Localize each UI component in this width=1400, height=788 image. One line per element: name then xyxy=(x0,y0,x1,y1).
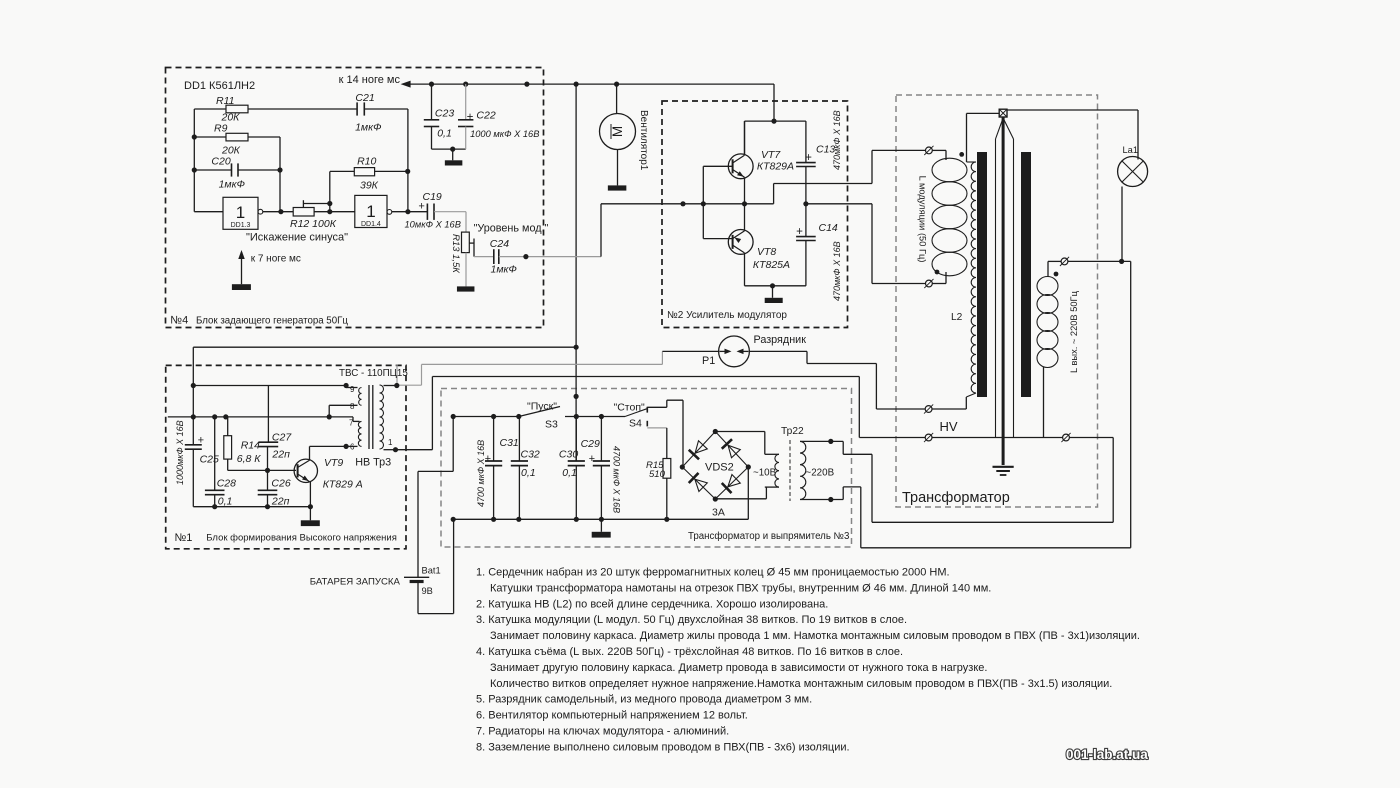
svg-text:HV: HV xyxy=(940,419,958,434)
svg-text:КТ829А: КТ829А xyxy=(757,161,794,173)
svg-text:7. Радиаторы на ключах модулят: 7. Радиаторы на ключах модулятора - алюм… xyxy=(476,726,729,738)
svg-text:0,1: 0,1 xyxy=(562,467,577,479)
svg-text:VDS2: VDS2 xyxy=(705,462,734,474)
svg-text:Bat1: Bat1 xyxy=(422,566,441,576)
svg-text:"Стоп": "Стоп" xyxy=(614,402,646,414)
svg-text:+: + xyxy=(589,453,596,465)
svg-text:39К: 39К xyxy=(360,180,379,192)
svg-text:4700 мкФ Х 16В: 4700 мкФ Х 16В xyxy=(612,446,622,513)
svg-text:DD1 К561ЛН2: DD1 К561ЛН2 xyxy=(184,80,255,92)
svg-text:22п: 22п xyxy=(271,496,290,508)
svg-text:L2: L2 xyxy=(951,312,963,323)
svg-text:"Уровень мод.": "Уровень мод." xyxy=(474,223,549,235)
svg-text:C22: C22 xyxy=(476,110,495,122)
svg-text:БАТАРЕЯ ЗАПУСКА: БАТАРЕЯ ЗАПУСКА xyxy=(310,577,401,588)
svg-text:9: 9 xyxy=(350,385,355,394)
svg-text:470мкФ Х 16В: 470мкФ Х 16В xyxy=(832,110,842,170)
svg-text:Разрядник: Разрядник xyxy=(754,334,807,346)
svg-text:7: 7 xyxy=(349,419,354,428)
svg-text:1мкФ: 1мкФ xyxy=(219,179,245,191)
svg-text:8: 8 xyxy=(350,402,355,411)
svg-text:Трансформатор: Трансформатор xyxy=(902,490,1010,506)
svg-text:R10: R10 xyxy=(357,156,376,168)
svg-text:DD1.3: DD1.3 xyxy=(231,222,251,229)
svg-text:C27: C27 xyxy=(272,432,292,444)
svg-text:C19: C19 xyxy=(423,191,442,203)
svg-text:Блок задающего генератора 50Гц: Блок задающего генератора 50Гц xyxy=(196,316,348,327)
svg-text:№4: №4 xyxy=(170,315,188,327)
svg-text:L модуляции (50 Гц): L модуляции (50 Гц) xyxy=(918,176,928,263)
svg-text:4700 мкФ Х 16В: 4700 мкФ Х 16В xyxy=(476,440,486,507)
svg-text:6: 6 xyxy=(350,443,355,452)
svg-text:к 14 ноге мс: к 14 ноге мс xyxy=(339,74,401,86)
svg-text:"Пуск": "Пуск" xyxy=(527,401,557,413)
svg-text:VT9: VT9 xyxy=(324,457,343,469)
svg-text:0,1: 0,1 xyxy=(521,467,536,479)
svg-text:1мкФ: 1мкФ xyxy=(355,122,381,134)
svg-text:C26: C26 xyxy=(271,478,290,490)
svg-text:КТ825А: КТ825А xyxy=(753,259,790,271)
svg-text:C20: C20 xyxy=(211,156,230,168)
svg-text:№1: №1 xyxy=(175,532,193,544)
svg-text:3А: 3А xyxy=(712,507,725,519)
svg-text:0,1: 0,1 xyxy=(437,128,452,140)
svg-text:КТ829 А: КТ829 А xyxy=(323,479,363,491)
svg-text:Занимает половину каркаса. Ди: Занимает половину каркаса. Диаметр жилы … xyxy=(490,630,1140,642)
svg-text:C31: C31 xyxy=(500,437,519,449)
svg-text:10мкФ Х 16В: 10мкФ Х 16В xyxy=(405,220,461,230)
svg-text:S3: S3 xyxy=(545,419,558,431)
svg-text:R11: R11 xyxy=(216,95,234,107)
svg-text:3. Катушка модуляции (L модул.: 3. Катушка модуляции (L модул. 50 Гц) дв… xyxy=(476,614,907,626)
svg-text:Трансформатор и выпрямитель №: Трансформатор и выпрямитель №3 xyxy=(688,531,849,542)
svg-text:4. Катушка съёма (L вых. 220В: 4. Катушка съёма (L вых. 220В 50Гц) - тр… xyxy=(476,646,903,658)
svg-text:001-lab.at.ua: 001-lab.at.ua xyxy=(1066,747,1148,762)
svg-text:470мкФ Х 16В: 470мкФ Х 16В xyxy=(832,241,842,301)
svg-text:1: 1 xyxy=(236,203,245,222)
svg-text:R13 1,5К: R13 1,5К xyxy=(450,234,461,274)
svg-text:~220В: ~220В xyxy=(806,468,835,479)
svg-text:C25: C25 xyxy=(200,454,219,466)
svg-text:Блок формирования Высокого нап: Блок формирования Высокого напряжения xyxy=(206,533,397,544)
svg-text:0,1: 0,1 xyxy=(218,496,233,508)
svg-text:Р1: Р1 xyxy=(702,355,715,367)
svg-text:L вых. ~ 220В 50Гц: L вых. ~ 220В 50Гц xyxy=(1069,290,1079,373)
svg-text:Катушки трансформатора намотан: Катушки трансформатора намотаны на отрез… xyxy=(490,582,991,594)
svg-text:C23: C23 xyxy=(435,108,454,120)
svg-text:1мкФ: 1мкФ xyxy=(491,264,517,276)
svg-text:Вентилятор1: Вентилятор1 xyxy=(638,110,649,171)
svg-text:C14: C14 xyxy=(819,222,838,234)
svg-text:6,8 К: 6,8 К xyxy=(237,453,262,465)
svg-text:Тр22: Тр22 xyxy=(781,426,804,437)
svg-text:Занимает другую половину карка: Занимает другую половину каркаса. Диамет… xyxy=(490,662,987,674)
svg-text:1: 1 xyxy=(388,438,393,447)
svg-text:C28: C28 xyxy=(217,478,236,490)
svg-text:R14: R14 xyxy=(241,440,260,452)
svg-text:S4: S4 xyxy=(629,418,642,430)
svg-text:НВ Тр3: НВ Тр3 xyxy=(355,457,391,469)
svg-text:+: + xyxy=(467,112,474,124)
svg-text:C24: C24 xyxy=(490,238,509,250)
svg-text:R12 100К: R12 100К xyxy=(290,218,337,230)
svg-text:VT7: VT7 xyxy=(761,149,781,161)
svg-text:C30: C30 xyxy=(559,449,578,461)
svg-text:9В: 9В xyxy=(422,586,433,596)
svg-text:8. Заземление выполнено силовы: 8. Заземление выполнено силовым проводом… xyxy=(476,741,850,753)
svg-text:VT8: VT8 xyxy=(757,246,776,258)
svg-text:1000мкФ Х 16В: 1000мкФ Х 16В xyxy=(175,420,185,485)
svg-text:DD1.4: DD1.4 xyxy=(361,221,381,228)
svg-text:Количество витков определяет н: Количество витков определяет нужное напр… xyxy=(490,678,1112,690)
svg-text:C29: C29 xyxy=(581,438,600,450)
svg-text:5. Разрядник самодельный, из м: 5. Разрядник самодельный, из медного про… xyxy=(476,694,812,706)
svg-text:M: M xyxy=(610,126,625,137)
svg-text:ТВС - 110ПЦ15: ТВС - 110ПЦ15 xyxy=(339,368,408,379)
svg-text:~10В: ~10В xyxy=(753,468,777,479)
svg-text:2. Катушка НВ (L2) по всей дли: 2. Катушка НВ (L2) по всей длине сердечн… xyxy=(476,598,828,610)
svg-text:510: 510 xyxy=(649,469,666,480)
svg-text:C21: C21 xyxy=(355,92,374,104)
svg-text:C32: C32 xyxy=(521,449,540,461)
svg-text:+: + xyxy=(198,435,205,447)
svg-text:"Искажение синуса": "Искажение синуса" xyxy=(246,232,348,244)
svg-text:№2 Усилитель модулятор: №2 Усилитель модулятор xyxy=(667,310,787,321)
svg-text:+: + xyxy=(796,226,803,238)
svg-text:1. Сердечник набран из 20 штук: 1. Сердечник набран из 20 штук ферромагн… xyxy=(476,567,950,579)
svg-text:R9: R9 xyxy=(214,123,228,135)
svg-text:6. Вентилятор компьютерный нап: 6. Вентилятор компьютерный напряжением 1… xyxy=(476,710,748,722)
svg-text:1: 1 xyxy=(366,202,375,221)
svg-text:La1: La1 xyxy=(1123,145,1139,155)
svg-text:к 7 ноге мс: к 7 ноге мс xyxy=(251,254,301,265)
svg-text:1000 мкФ Х 16В: 1000 мкФ Х 16В xyxy=(470,129,539,139)
svg-text:+: + xyxy=(805,152,812,164)
svg-text:22п: 22п xyxy=(271,449,290,461)
